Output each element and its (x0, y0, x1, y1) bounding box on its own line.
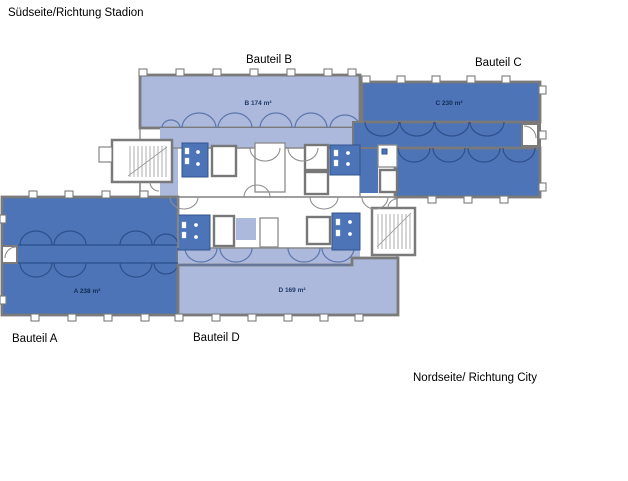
room-c-bottom (395, 148, 540, 197)
room-a-area-label: A 238 m² (74, 288, 102, 295)
stairwell-right (372, 199, 415, 255)
elevator (305, 172, 328, 194)
elevator (214, 216, 234, 246)
room-b-area-label: B 174 m² (244, 100, 272, 107)
south-side-label: Südseite/Richtung Stadion (8, 7, 144, 19)
bauteil-c-label: Bauteil C (475, 57, 522, 69)
elevator (212, 146, 236, 176)
elevator (380, 170, 397, 192)
wing-a (2, 197, 178, 315)
room-d-area-label: D 169 m² (278, 287, 306, 294)
floor-plan-page: Südseite/Richtung Stadion Bauteil B Baut… (0, 0, 628, 481)
floor-plan-svg: Südseite/Richtung Stadion Bauteil B Baut… (0, 0, 628, 481)
core-walls (178, 197, 397, 248)
elevator (305, 145, 328, 170)
room-c-area-label: C 230 m² (435, 100, 463, 107)
north-side-label: Nordseite/ Richtung City (413, 372, 537, 384)
room-a (2, 197, 178, 315)
elevator (307, 217, 330, 244)
bauteil-a-label: Bauteil A (12, 333, 58, 345)
corridor-d (178, 248, 360, 265)
wing-d (178, 248, 398, 315)
bauteil-d-label: Bauteil D (193, 332, 240, 344)
bauteil-b-label: Bauteil B (246, 54, 292, 66)
